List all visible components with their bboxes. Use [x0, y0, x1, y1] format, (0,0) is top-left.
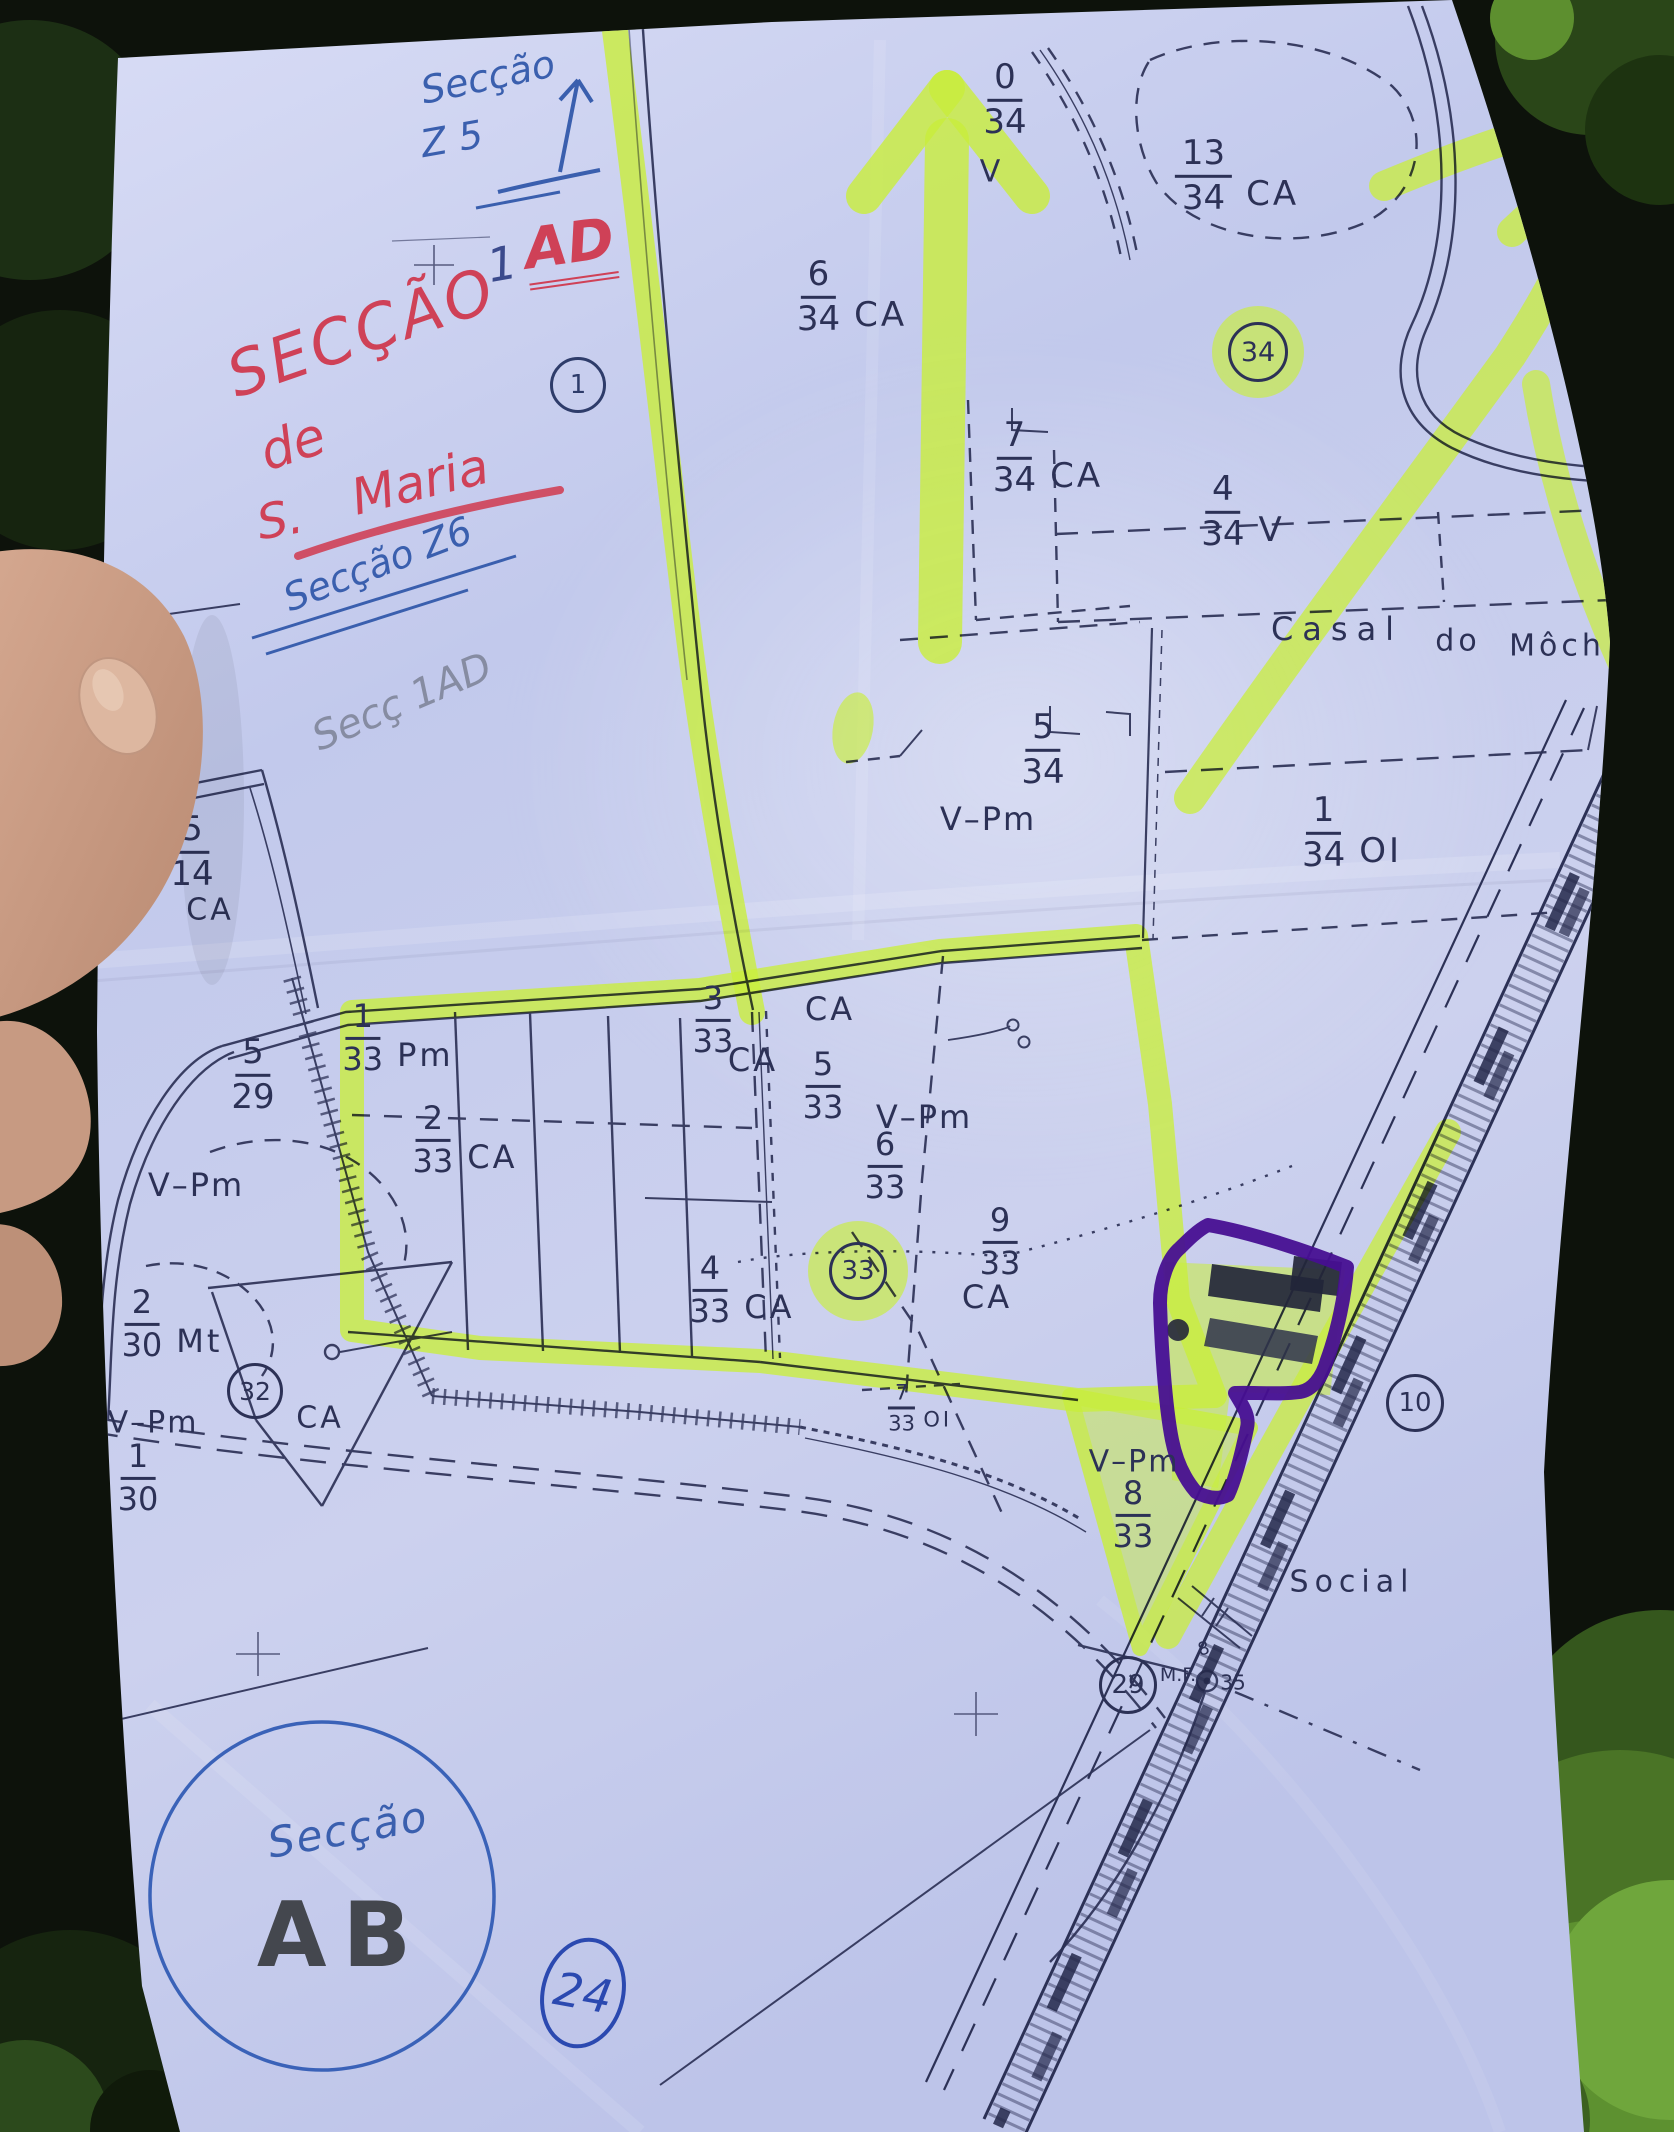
circled-34: 34: [1228, 322, 1288, 382]
place-moch: Môch: [1509, 630, 1605, 662]
station-number: 35: [1220, 1673, 1245, 1694]
red-title-ad: AD: [521, 210, 620, 291]
circled-1: 1: [550, 357, 606, 413]
land-use-v-pm-3: V–Pm: [148, 1169, 244, 1203]
note-seccao-z5-line2: Z 5: [418, 115, 486, 165]
parcel-9-33: 933: [980, 1204, 1021, 1280]
parcel-0-34: 034: [983, 60, 1026, 140]
note-seccao-z6: Secção Z6: [278, 511, 477, 619]
place-casal: Casal: [1271, 613, 1403, 647]
parcel-6-33: 633: [865, 1128, 906, 1204]
red-maria: Maria: [346, 440, 493, 525]
parcel-1-34: 134OI: [1302, 793, 1402, 873]
note-seccao-z5-line1: Secção: [417, 44, 558, 111]
parcel-2-33: 233CA: [413, 1102, 518, 1178]
circled-29: 29: [1099, 1656, 1157, 1714]
parcel-8-33: 833: [1113, 1477, 1154, 1553]
photo-of-cadastral-map: Secção Z 5 SECÇÃO 1 AD de S. Maria Secçã…: [0, 0, 1674, 2132]
parcel-7-33: 733OI: [888, 1381, 952, 1434]
parcel-1-33: 133Pm: [342, 1000, 453, 1076]
station-small-digit: 8: [1196, 1639, 1212, 1660]
parcel-1-30: 130: [118, 1440, 159, 1516]
red-de: de: [254, 409, 333, 481]
red-title-seccao: SECÇÃO: [219, 256, 505, 409]
land-use-v-pm-1: V–Pm: [940, 803, 1036, 837]
parcel-4-33: 433CA: [690, 1252, 795, 1328]
land-use-ca-e: CA: [296, 1402, 343, 1434]
land-use-ca-514: CA: [186, 894, 233, 926]
parcel-13-34: 1334CA: [1175, 136, 1299, 216]
place-do: do: [1435, 625, 1480, 657]
land-use-ca-a: CA: [805, 993, 855, 1027]
parcel-5-33: 533: [803, 1048, 844, 1124]
pencil-note-secc-1ad: Secç 1AD: [306, 645, 498, 758]
label-layer: Secção Z 5 SECÇÃO 1 AD de S. Maria Secçã…: [0, 0, 1674, 2132]
circled-24: 24: [550, 1964, 616, 2022]
ab-section-code: AB: [257, 1889, 427, 1984]
red-s: S.: [253, 491, 307, 549]
parcel-5-14: 514: [170, 812, 213, 892]
land-use-v: V: [980, 156, 1001, 188]
place-social: Social: [1290, 1566, 1415, 1598]
land-use-v-pm-4: V–Pm: [108, 1407, 199, 1439]
station-mf: M.F.: [1160, 1666, 1196, 1686]
circled-33: 33: [829, 1242, 887, 1300]
parcel-7-34: 734CA: [993, 418, 1103, 498]
parcel-5-29: 529: [231, 1035, 274, 1115]
land-use-ca-b: CA: [728, 1044, 778, 1078]
parcel-6-34: 634CA: [797, 257, 907, 337]
land-use-ca-d: CA: [962, 1281, 1012, 1315]
parcel-5-34: 534: [1021, 710, 1064, 790]
circled-32: 32: [227, 1363, 283, 1419]
parcel-2-30: 230Mt: [122, 1286, 223, 1362]
circled-10: 10: [1386, 1374, 1444, 1432]
parcel-4-34: 434V: [1201, 472, 1285, 552]
ab-section-title: Secção: [264, 1794, 431, 1866]
